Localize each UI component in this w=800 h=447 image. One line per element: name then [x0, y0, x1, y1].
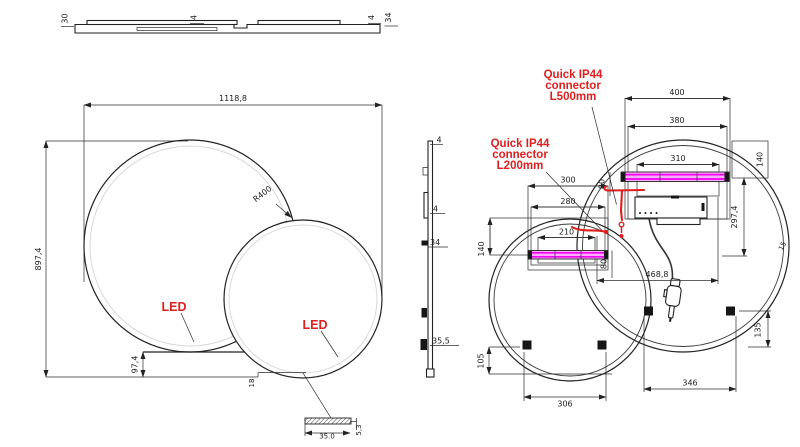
back-view: 15 400 380 310 140 80	[477, 69, 790, 409]
top-dim-30: 30	[61, 13, 70, 23]
back-dim-310: 310	[670, 154, 685, 163]
back-dim-80-left: 80	[600, 259, 609, 269]
back-dim-140-left: 140	[477, 241, 486, 256]
side-dim-35-5: 35,5	[432, 337, 450, 346]
side-view: 4 4 34 35,5	[421, 136, 460, 378]
small-mirror-outline	[224, 220, 382, 378]
back-dim-280: 280	[560, 197, 575, 206]
top-profile-view: 30 4 4 34	[61, 12, 399, 33]
back-dim-297: 297,4	[730, 206, 739, 229]
back-dim-105: 105	[477, 353, 486, 368]
back-dim-346: 346	[682, 379, 697, 388]
back-dim-300: 300	[560, 176, 575, 185]
back-dim-380: 380	[669, 116, 684, 125]
cable-l500-end	[620, 234, 624, 238]
cable-l200-end	[604, 230, 608, 234]
top-profile-plate-left	[87, 21, 237, 25]
note-l200-line3: L200mm	[497, 160, 544, 172]
led-strip-right	[621, 172, 729, 182]
side-tab-2	[421, 339, 428, 350]
back-dim-306: 306	[557, 400, 572, 409]
power-plug	[660, 278, 682, 323]
back-dim-140-right: 140	[756, 152, 765, 167]
dim-overall-height: 897,4	[34, 141, 258, 377]
back-dim-468: 468,8	[646, 270, 669, 279]
top-dim-4a: 4	[190, 15, 199, 20]
side-clip-top	[423, 168, 428, 176]
led-label-left: LED	[162, 300, 195, 342]
side-mount-plate	[424, 193, 428, 219]
detail-dim-35: 35.0	[319, 433, 335, 441]
front-view: 1118,8 897,4 97,4 18 R400	[34, 94, 382, 441]
mount-square	[644, 307, 653, 316]
side-profile-foot	[427, 369, 435, 377]
edge-section-detail: 35.0 5,3	[303, 373, 363, 441]
dim-346: 346	[644, 316, 736, 392]
side-clip-mid	[422, 241, 429, 246]
front-dim-18: 18	[248, 379, 256, 388]
led-text-right: LED	[303, 318, 328, 332]
back-small-mirror-inner	[494, 224, 646, 376]
side-dim-4-mid: 4	[433, 205, 438, 214]
front-dim-width: 1118,8	[219, 94, 247, 103]
cable-l500-drop	[621, 191, 622, 221]
top-profile-bar	[75, 25, 380, 34]
back-rect-140-left	[490, 218, 608, 255]
side-dim-4-top: 4	[437, 136, 442, 145]
technical-drawing-page: 30 4 4 34 1118,8 897,4 97,4	[0, 0, 800, 447]
driver-housing	[635, 197, 707, 218]
back-dim-400: 400	[669, 88, 684, 97]
mount-square	[598, 341, 607, 350]
led-strip-left	[528, 251, 608, 260]
mount-square	[726, 307, 735, 316]
note-quick-ip44-l200: Quick IP44 connector L200mm	[491, 138, 550, 172]
front-dim-height: 897,4	[34, 248, 43, 271]
detail-dim-5-3: 5,3	[355, 424, 363, 435]
dim-105: 105	[477, 347, 613, 374]
back-dim-210: 210	[559, 228, 574, 237]
note-l500-line3: L500mm	[550, 91, 597, 103]
driver-bracket	[657, 218, 700, 225]
led-strip-left-body	[528, 251, 608, 260]
cable-l500-run	[604, 187, 644, 191]
cable-l500-connector	[619, 222, 624, 227]
note-quick-ip44-l500: Quick IP44 connector L500mm	[544, 69, 603, 103]
top-dim-34: 34	[384, 12, 393, 22]
back-dim-135: 135	[754, 322, 763, 337]
top-dim-4b: 4	[367, 15, 376, 20]
led-strip-right-body	[621, 172, 729, 182]
detail-hatched-profile	[305, 418, 351, 424]
front-dim-r400: R400	[251, 184, 273, 204]
dim-bottom-offset: 97,4	[131, 352, 144, 377]
back-dim-rim15: 15	[777, 240, 788, 251]
top-profile-plate-right	[258, 21, 340, 25]
front-dim-97: 97,4	[131, 356, 140, 374]
side-dim-34: 34	[430, 238, 440, 247]
drawing-svg: 30 4 4 34 1118,8 897,4 97,4	[0, 0, 800, 447]
mount-square	[523, 341, 532, 350]
led-text-left: LED	[162, 300, 187, 314]
side-tab-1	[422, 308, 428, 318]
dim-297: 297,4	[722, 178, 747, 256]
back-small-mirror-outline	[489, 219, 651, 381]
driver-box	[635, 196, 707, 225]
